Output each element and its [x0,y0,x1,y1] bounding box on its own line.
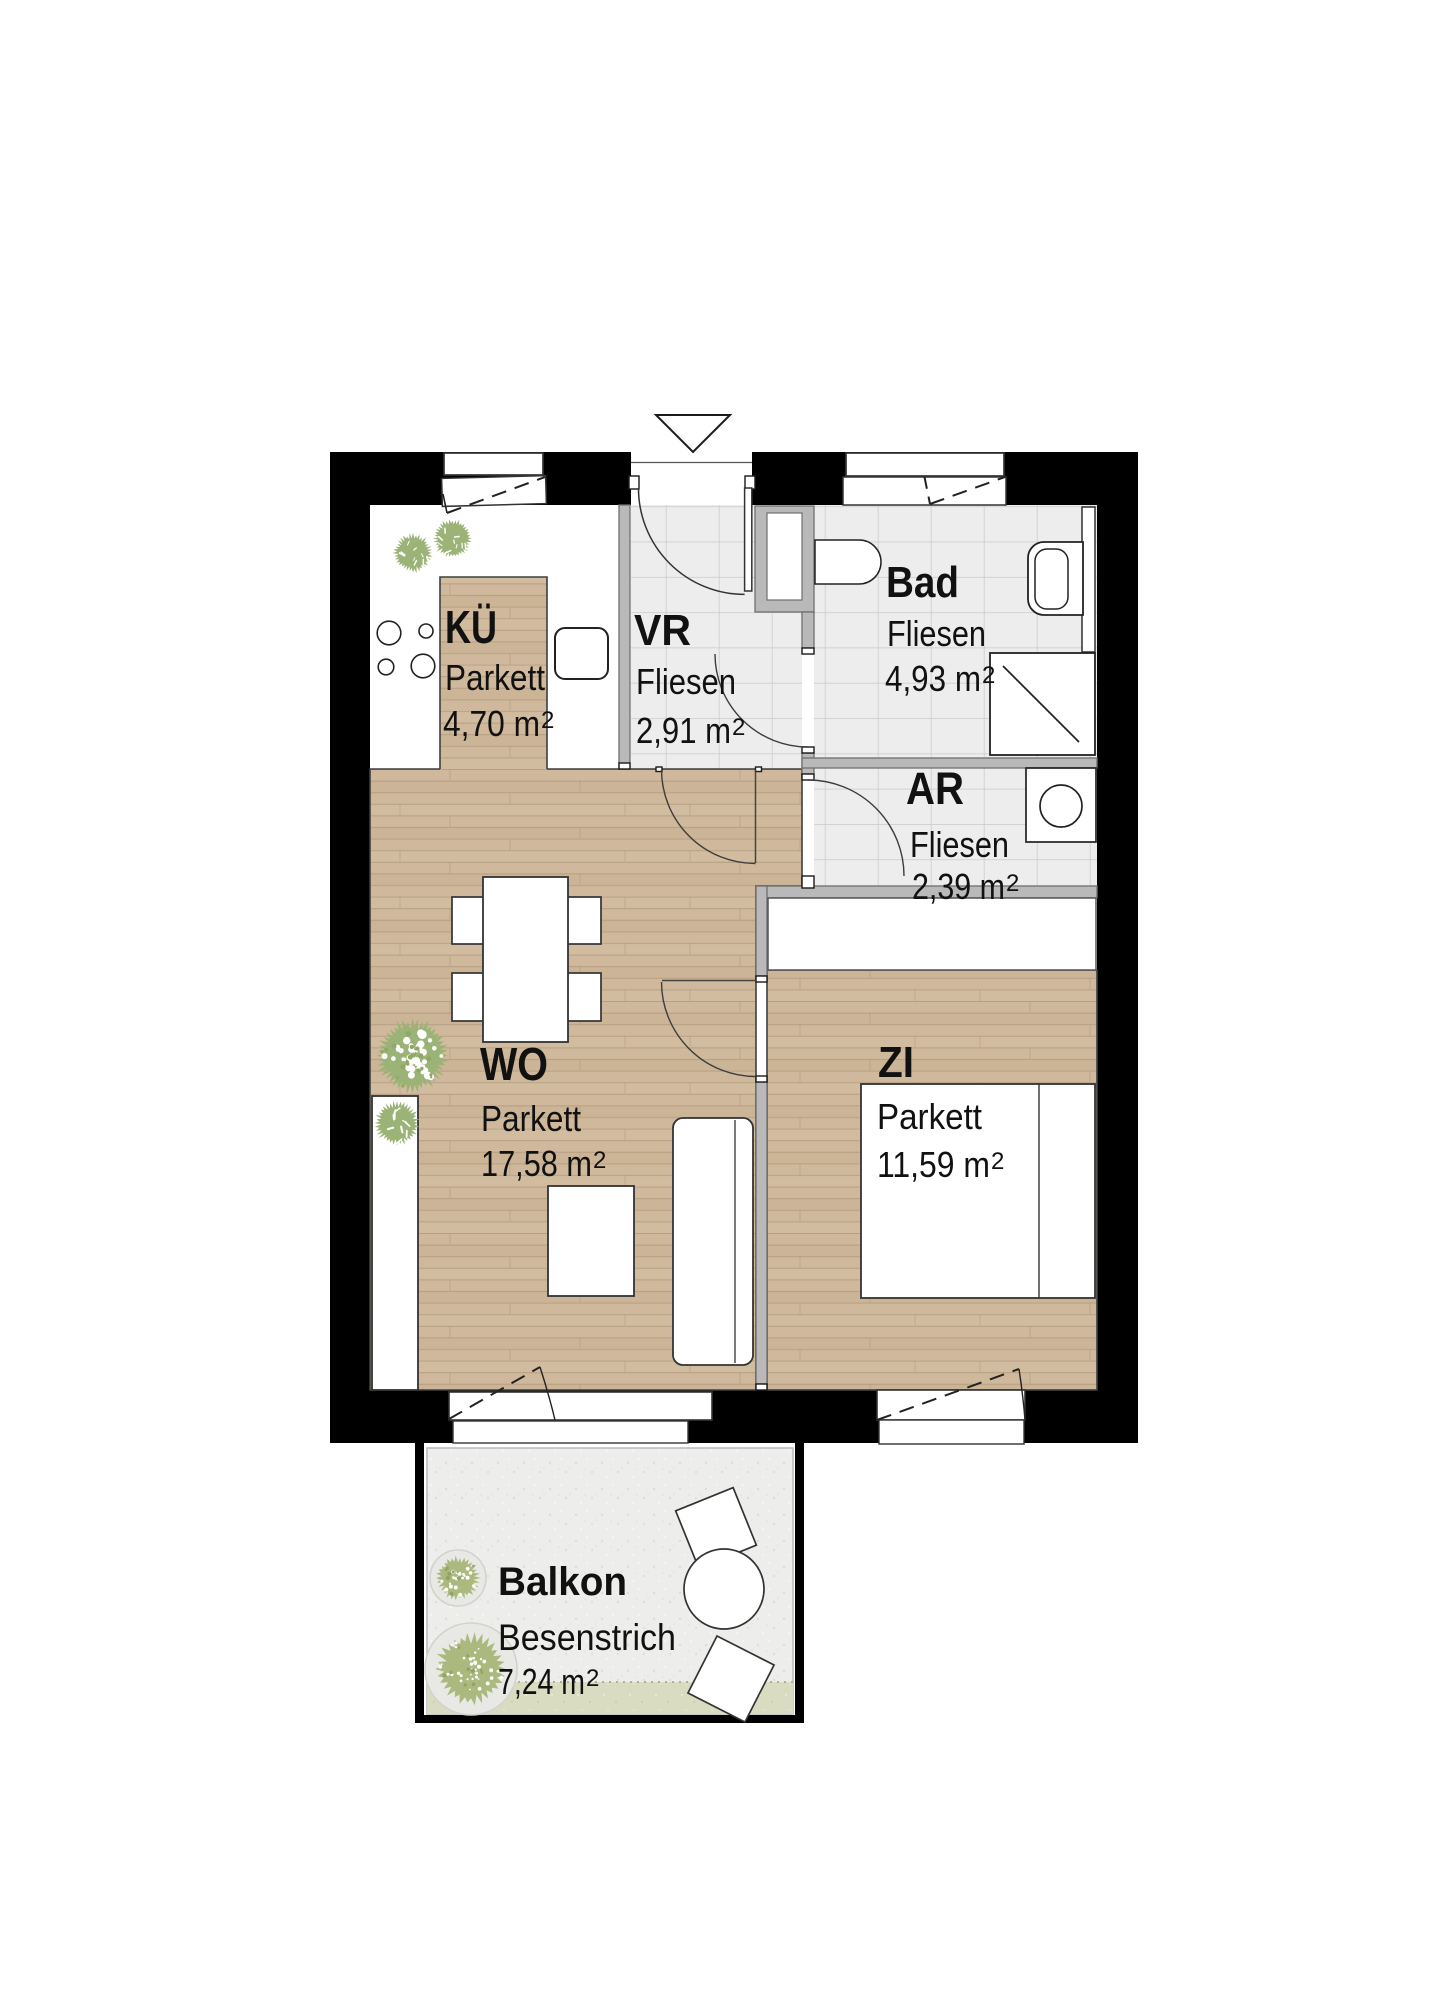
svg-text:2: 2 [732,714,745,741]
svg-text:17,58 m: 17,58 m [481,1143,592,1184]
svg-text:Fliesen: Fliesen [887,613,986,654]
svg-text:2: 2 [991,1148,1004,1175]
svg-text:KÜ: KÜ [445,601,497,653]
svg-text:2: 2 [541,707,554,734]
svg-text:Balkon: Balkon [498,1560,627,1604]
svg-text:2: 2 [1006,870,1019,897]
svg-text:VR: VR [634,606,691,655]
svg-text:Besenstrich: Besenstrich [498,1617,676,1658]
svg-text:2,39 m: 2,39 m [912,866,1005,907]
svg-text:7,24 m: 7,24 m [498,1661,585,1702]
svg-text:11,59 m: 11,59 m [877,1144,990,1185]
svg-text:Parkett: Parkett [877,1096,982,1137]
svg-text:4,93 m: 4,93 m [885,658,981,699]
svg-text:Bad: Bad [886,558,959,607]
svg-text:4,70 m: 4,70 m [443,703,540,744]
svg-text:Fliesen: Fliesen [910,824,1009,865]
svg-text:Fliesen: Fliesen [636,661,736,702]
svg-text:Parkett: Parkett [445,657,545,698]
svg-text:WO: WO [480,1038,548,1090]
svg-text:2,91 m: 2,91 m [636,710,731,751]
svg-text:2: 2 [982,662,995,689]
svg-text:Parkett: Parkett [481,1098,581,1139]
svg-text:ZI: ZI [878,1038,914,1087]
svg-text:2: 2 [586,1665,599,1692]
svg-text:2: 2 [593,1147,606,1174]
svg-text:AR: AR [906,763,964,814]
